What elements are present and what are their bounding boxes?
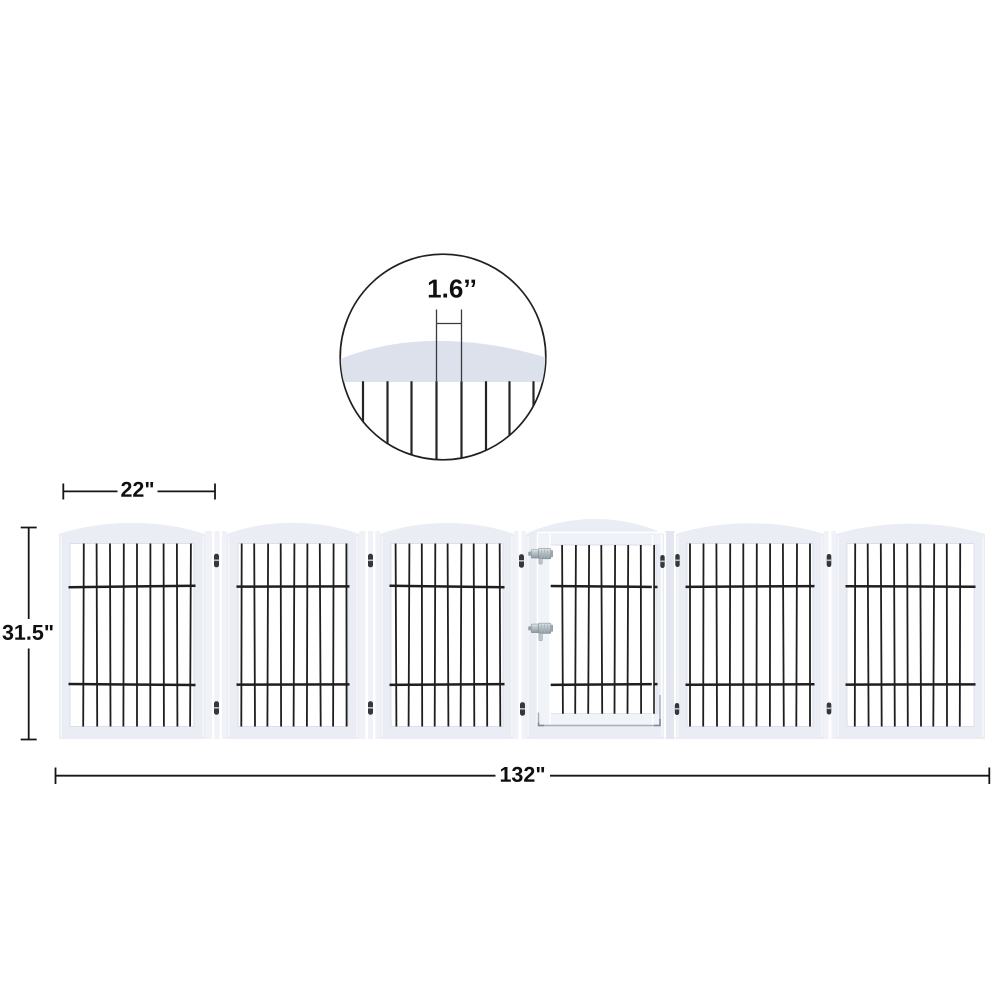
svg-text:22": 22" (120, 478, 154, 502)
svg-text:31.5": 31.5" (2, 621, 54, 645)
svg-text:132": 132" (499, 763, 545, 787)
svg-text:1.6’’: 1.6’’ (427, 273, 477, 303)
